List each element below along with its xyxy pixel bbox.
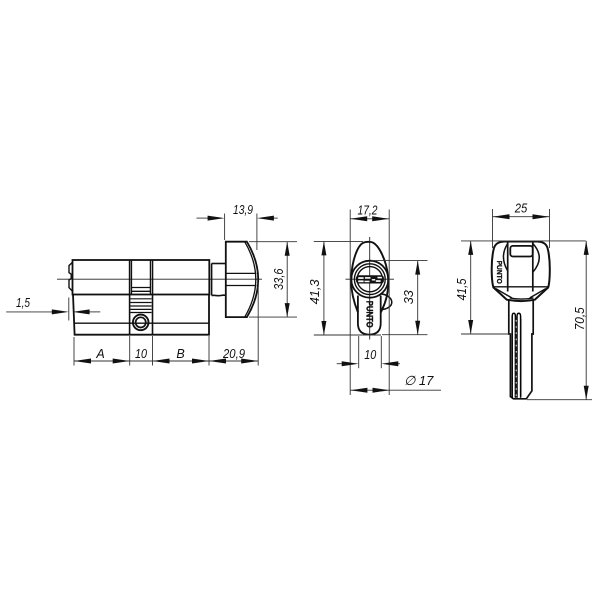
svg-text:PUNTO: PUNTO	[495, 261, 504, 284]
svg-text:1,5: 1,5	[16, 296, 30, 310]
svg-text:41,3: 41,3	[308, 279, 322, 304]
svg-text:13,9: 13,9	[233, 203, 253, 217]
svg-text:10: 10	[364, 348, 376, 362]
svg-text:10: 10	[135, 347, 147, 361]
svg-text:A: A	[95, 347, 104, 361]
svg-text:∅ 17: ∅ 17	[404, 373, 434, 388]
svg-text:B: B	[176, 347, 184, 361]
svg-text:33,6: 33,6	[272, 268, 286, 290]
svg-text:25: 25	[514, 202, 527, 216]
svg-text:17,2: 17,2	[358, 203, 378, 217]
svg-text:PUNTO: PUNTO	[364, 301, 374, 328]
svg-text:41,5: 41,5	[455, 278, 469, 300]
svg-text:70,5: 70,5	[573, 307, 587, 330]
svg-text:33: 33	[402, 290, 416, 304]
